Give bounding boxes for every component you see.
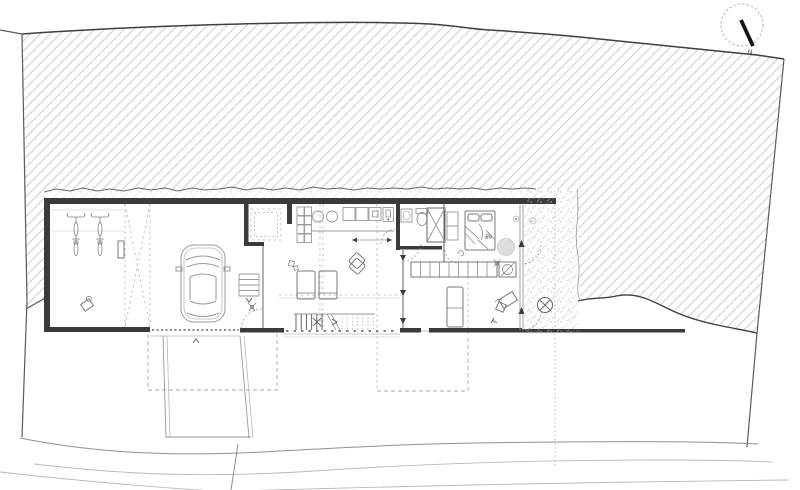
plant-icon	[486, 234, 492, 239]
site-plan-page: N	[0, 0, 800, 490]
stairs-garage	[239, 274, 262, 330]
wall-bottom-right-a	[400, 328, 421, 333]
upper-cabinets	[343, 208, 381, 221]
side-table	[288, 260, 298, 270]
north-needle-icon	[741, 20, 753, 46]
wall-top	[44, 198, 556, 204]
kitchen	[297, 207, 396, 244]
bench-sofa	[447, 287, 463, 327]
wall-bottom-right-b	[429, 328, 522, 333]
wall-vestibule-bottom	[244, 242, 264, 246]
ceiling-symbol-icon	[513, 216, 519, 222]
wall-vestibule-right	[287, 204, 292, 224]
cooktop-icon	[383, 208, 394, 222]
sink-basin-icon	[313, 211, 324, 222]
driveway	[150, 336, 253, 438]
wall-bath-west	[396, 204, 400, 250]
bicycle-icon	[67, 213, 85, 256]
road	[0, 438, 788, 490]
mirror-box	[499, 262, 516, 277]
garage	[176, 245, 230, 322]
backfill-stipple	[44, 191, 576, 198]
wall-bottom-left	[44, 327, 150, 332]
stair-down-arrow	[246, 298, 252, 302]
slider-marker-icon	[400, 255, 406, 261]
duvet-folds	[465, 224, 495, 249]
study	[447, 287, 517, 327]
facade-glazing	[283, 331, 400, 337]
interior-walls	[244, 204, 525, 330]
slope-arrow	[193, 339, 199, 343]
lounge-chair	[346, 252, 369, 275]
door-swing-arc	[445, 250, 458, 263]
car-icon	[176, 245, 230, 322]
floor-plan-canvas: N	[0, 0, 800, 490]
vestibule	[251, 209, 281, 240]
decor-squiggle	[458, 250, 464, 256]
wall-vestibule-left	[244, 204, 249, 246]
gravel-stipple	[524, 190, 578, 332]
bicycle-icon	[91, 213, 109, 256]
bedroom	[458, 211, 519, 267]
north-compass: N	[721, 4, 763, 56]
shower-icon	[427, 208, 445, 242]
pillow	[468, 214, 479, 221]
terrace	[522, 190, 580, 332]
road-edge-upper	[20, 438, 758, 454]
door-swing-arc	[241, 309, 262, 330]
bathroom	[401, 208, 458, 263]
slider-marker-icon	[400, 318, 406, 324]
sink-basin-icon	[327, 211, 338, 222]
boundary-stub	[0, 30, 22, 34]
wall-bottom-stairhall	[240, 328, 284, 333]
bath-cabinet	[447, 212, 458, 240]
desk-chair	[495, 299, 506, 312]
pillow	[481, 214, 492, 221]
toilet-icon	[416, 209, 428, 226]
slider-marker-icon	[519, 307, 525, 314]
road-edge-lower	[34, 460, 772, 475]
road-curb-right	[236, 480, 788, 490]
round-rug	[498, 239, 515, 256]
pantry-unit	[297, 207, 312, 243]
room-bike-storage	[52, 210, 124, 311]
opening-double-arrow	[352, 238, 392, 242]
plant-icon	[248, 303, 256, 311]
wardrobe	[411, 262, 516, 277]
mat-outline-dashed	[251, 209, 281, 240]
bed	[465, 211, 495, 250]
road-cross-line	[231, 444, 238, 490]
sprig-icon	[491, 318, 497, 323]
wall-left	[44, 198, 50, 332]
stairs-main	[294, 314, 375, 330]
living-room	[288, 252, 375, 330]
void-dashed-strip	[125, 204, 150, 327]
washbasin-icon	[401, 209, 412, 222]
wall-bath-south	[396, 246, 442, 250]
slider-marker-icon	[519, 240, 525, 247]
door-swing-arc	[403, 243, 421, 261]
stool-icon	[79, 295, 95, 311]
mat-inner-dashed	[255, 213, 278, 237]
north-label: N	[748, 50, 752, 56]
projection-rect-right	[377, 336, 468, 391]
door-leaf	[118, 241, 124, 258]
